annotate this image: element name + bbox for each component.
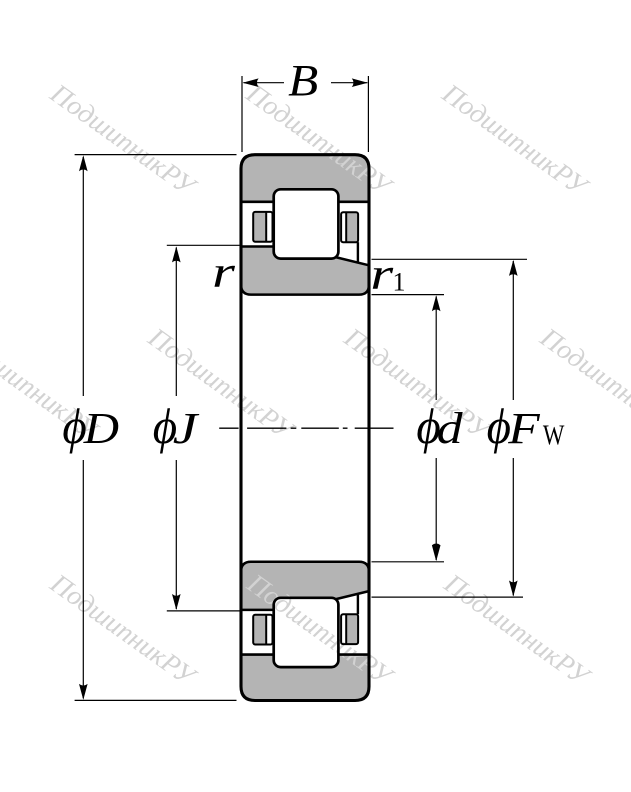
svg-text:ПодшипникРУ: ПодшипникРУ — [436, 77, 595, 203]
svg-text:ПодшипникРУ: ПодшипникРУ — [438, 567, 597, 693]
svg-text:F: F — [507, 404, 540, 453]
svg-text:ПодшипникРУ: ПодшипникРУ — [44, 77, 203, 203]
svg-text:d: d — [437, 405, 464, 453]
svg-text:ПодшипникРУ: ПодшипникРУ — [44, 567, 203, 693]
svg-text:J: J — [173, 404, 201, 453]
svg-text:1: 1 — [393, 268, 406, 297]
svg-text:W: W — [543, 419, 565, 451]
svg-text:B: B — [288, 56, 318, 105]
svg-text:r: r — [370, 250, 394, 298]
svg-text:D: D — [83, 405, 119, 453]
svg-text:r: r — [212, 248, 236, 296]
